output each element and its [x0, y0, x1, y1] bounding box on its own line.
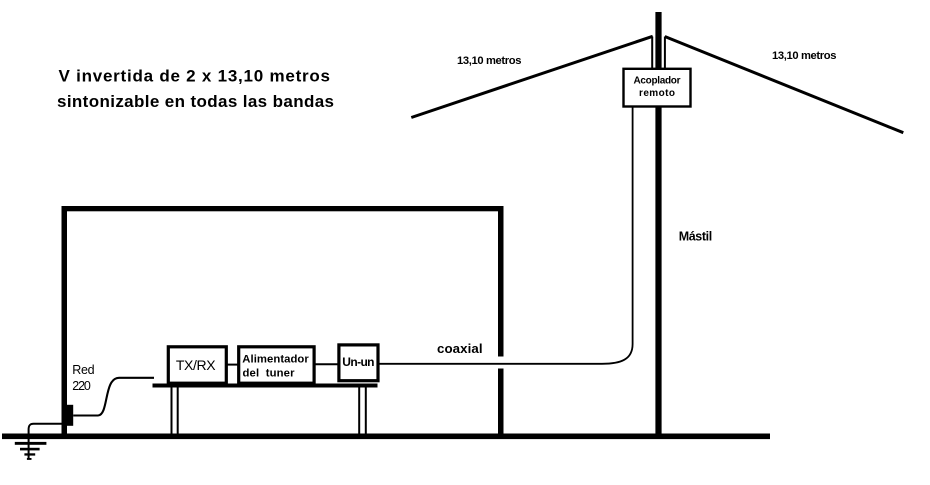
svg-text:13,10 metros: 13,10 metros	[772, 50, 837, 62]
svg-text:sintonizable en todas las band: sintonizable en todas las bandas	[57, 92, 334, 111]
svg-text:Acoplador: Acoplador	[634, 76, 681, 87]
svg-text:del tuner: del tuner	[243, 368, 296, 380]
svg-text:remoto: remoto	[639, 88, 675, 99]
svg-text:13,10 metros: 13,10 metros	[457, 55, 522, 67]
svg-text:Mástil: Mástil	[679, 230, 713, 244]
svg-text:V invertida de 2 x 13,10 metro: V invertida de 2 x 13,10 metros	[59, 67, 331, 86]
svg-text:coaxial: coaxial	[437, 341, 483, 356]
svg-text:220: 220	[72, 379, 91, 393]
svg-text:Alimentador: Alimentador	[242, 353, 309, 365]
svg-text:TX/RX: TX/RX	[176, 357, 216, 373]
svg-text:Red: Red	[72, 363, 94, 377]
svg-text:Un-un: Un-un	[342, 355, 374, 369]
